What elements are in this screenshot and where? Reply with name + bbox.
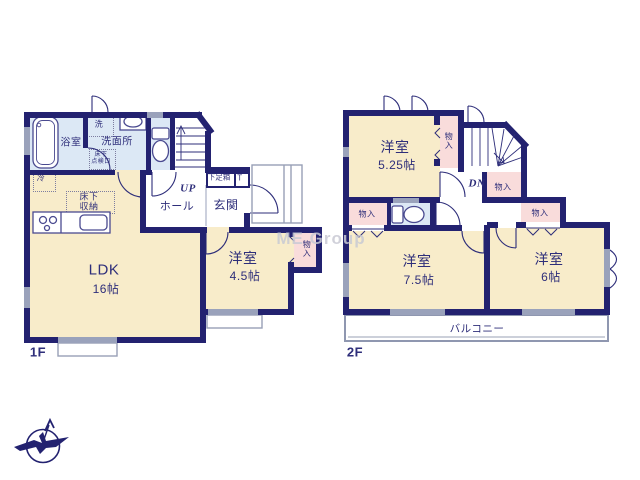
wall	[521, 144, 527, 203]
wall	[343, 309, 390, 315]
wall	[140, 227, 207, 233]
window	[343, 147, 349, 157]
ldk-area: 16帖	[93, 283, 120, 297]
window	[343, 263, 349, 297]
window	[604, 268, 610, 287]
watermark: ME Group	[276, 229, 365, 249]
toilet-1f-door	[152, 172, 176, 196]
ldk-name: LDK	[89, 261, 120, 278]
laundry-label: 洗	[95, 119, 104, 128]
bedroom-525-door	[440, 172, 465, 197]
bedroom-terrace-step	[207, 315, 262, 328]
toilet-2f-door	[436, 202, 460, 226]
wall	[434, 116, 440, 125]
bedroom-6-casement-windows	[610, 250, 617, 288]
wall	[343, 197, 440, 203]
room-bedroom-75	[349, 231, 484, 309]
window	[393, 198, 419, 203]
underfloor-storage-label: 床下 収納	[79, 192, 98, 213]
bedroom-6-name: 洋室	[535, 251, 564, 267]
balcony-label: バルコニー	[450, 323, 505, 335]
wall	[258, 309, 294, 315]
room-toilet-2f	[391, 203, 430, 225]
wall	[288, 262, 294, 315]
window	[58, 337, 117, 343]
wall	[146, 112, 151, 170]
wall	[117, 337, 206, 343]
wall	[294, 267, 322, 273]
stairs-down-label: DN	[469, 178, 486, 191]
window	[208, 309, 258, 315]
room-bedroom-6	[490, 228, 604, 309]
window	[522, 309, 575, 315]
closet-2f-d-label: 物入	[359, 209, 376, 218]
bedroom-525-area: 5.25帖	[378, 159, 416, 173]
wall	[387, 203, 391, 225]
bedroom-75-area: 7.5帖	[404, 274, 435, 288]
wall	[384, 225, 462, 231]
wall	[170, 112, 175, 170]
wall	[200, 233, 206, 343]
washroom-label: 洗面所	[101, 136, 133, 148]
shoe-box-t-label: T	[237, 173, 242, 182]
wall	[24, 112, 202, 118]
wall	[464, 122, 507, 128]
entrance-door	[250, 185, 278, 213]
floor-2f-label: 2F	[347, 346, 363, 361]
window	[390, 309, 445, 315]
window	[24, 287, 30, 308]
wall	[516, 222, 526, 228]
wall	[205, 131, 211, 172]
wall	[140, 170, 146, 233]
fridge-label: 冷	[37, 173, 46, 182]
stairs-up-label: UP	[180, 183, 196, 196]
closet-2f-a-label: 物 入	[445, 132, 454, 150]
wall	[83, 112, 88, 148]
wall	[434, 159, 440, 166]
wall	[458, 110, 464, 172]
room-ldk-b	[140, 233, 206, 343]
window	[24, 127, 30, 155]
stairs-2f	[472, 128, 523, 166]
wall	[560, 222, 610, 228]
wall	[430, 203, 436, 226]
wall	[343, 297, 349, 315]
bathroom-label: 浴室	[61, 137, 82, 149]
floor-plan: LDK 16帖 洋室 4.5帖 浴室 洗面所 洗 床下 点検口 冷 床下 収納 …	[0, 0, 640, 480]
wall	[343, 110, 464, 116]
stair-hall-window-swing	[468, 106, 484, 122]
closet-2f-b-label: 物入	[495, 182, 512, 191]
bedroom-75-name: 洋室	[403, 253, 432, 269]
bedroom-525-name: 洋室	[381, 139, 410, 155]
entrance-porch	[252, 165, 302, 223]
floor-1f-label: 1F	[30, 346, 46, 361]
bedroom-45-area: 4.5帖	[230, 270, 261, 284]
wall	[604, 222, 610, 249]
wall	[575, 309, 610, 315]
compass-icon	[14, 420, 69, 463]
window	[147, 112, 163, 118]
wall	[482, 197, 521, 203]
hall-label: ホール	[160, 201, 195, 214]
closet-2f-c-label: 物入	[532, 208, 549, 217]
wall	[484, 225, 490, 315]
wall	[24, 308, 30, 343]
window	[604, 249, 610, 268]
bedroom-45-name: 洋室	[229, 250, 258, 266]
shoe-box-label: 下足箱	[208, 174, 231, 183]
washroom-window-swing	[92, 96, 108, 112]
ldk-terrace-step	[58, 343, 117, 356]
wall	[343, 110, 349, 147]
wall	[24, 112, 30, 127]
inspection-hatch-label: 床下 点検口	[91, 152, 111, 166]
entrance-label: 玄関	[213, 199, 238, 213]
bedroom-6-area: 6帖	[541, 271, 561, 285]
